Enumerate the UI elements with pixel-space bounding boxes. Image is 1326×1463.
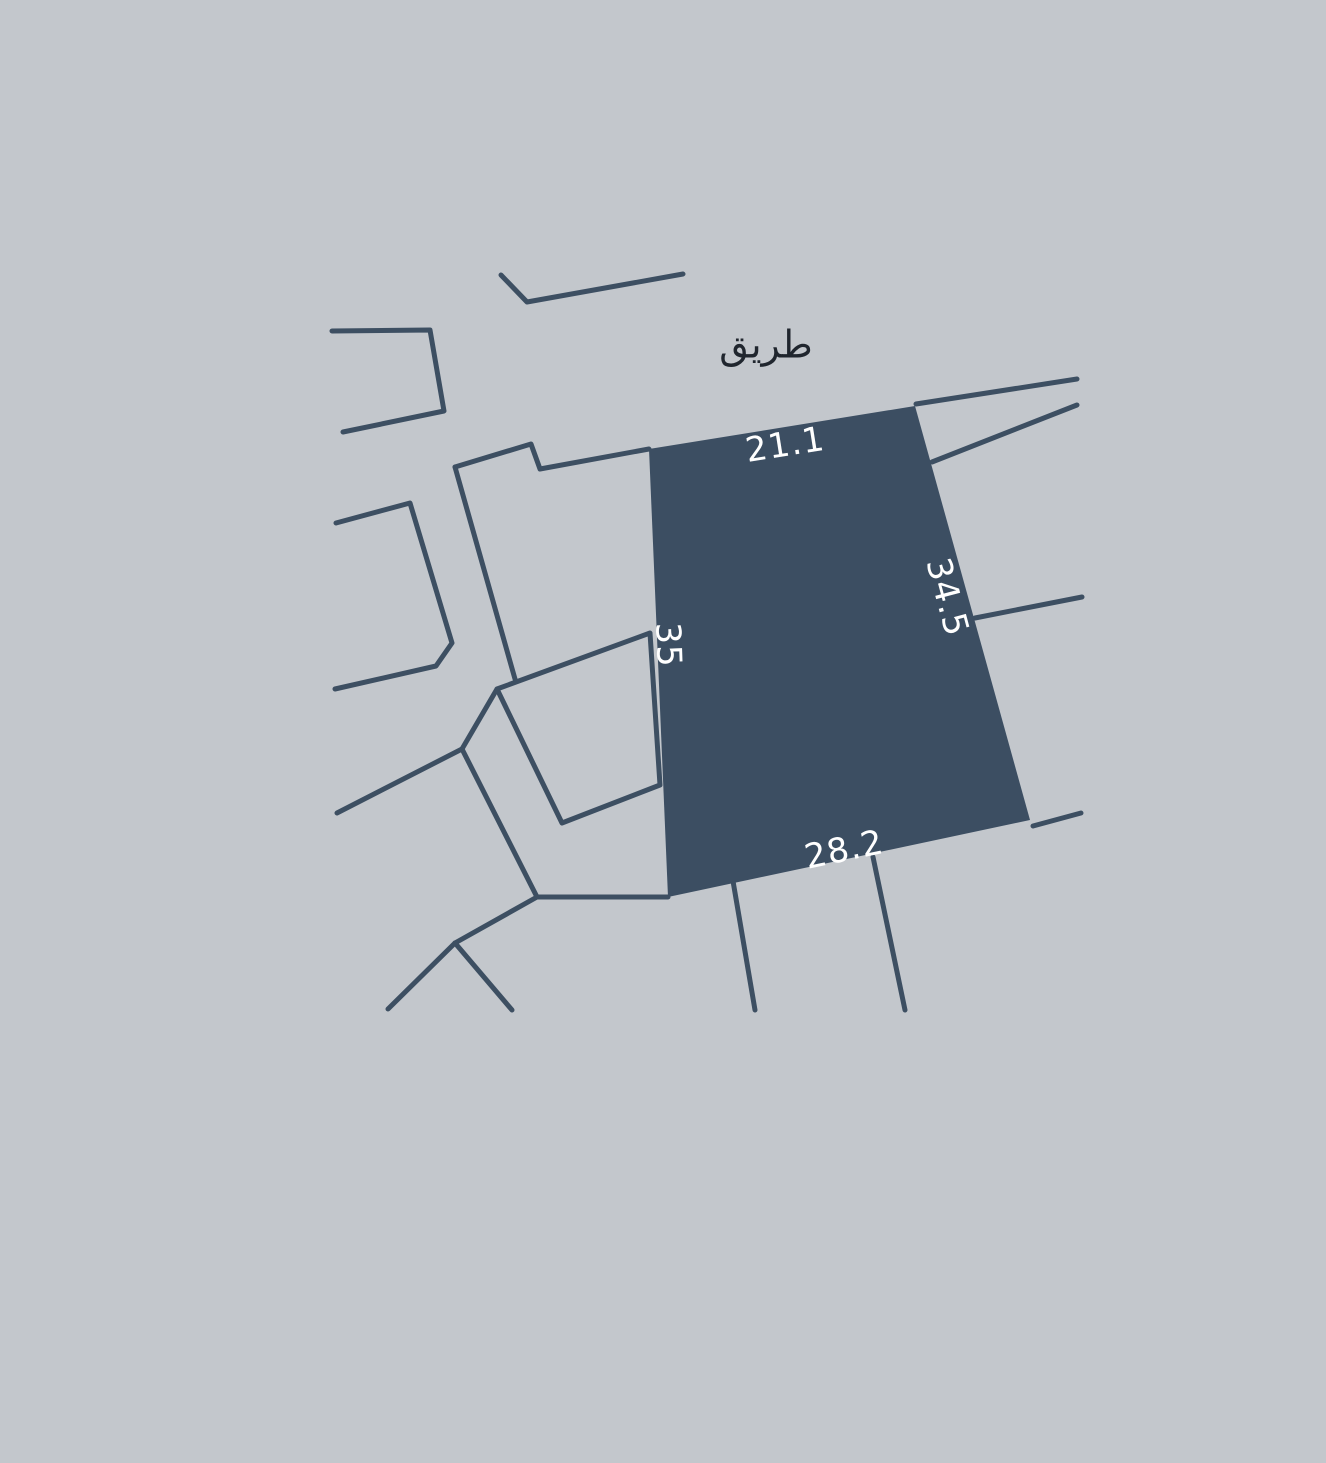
- cadastral-map-svg: طريق21.134.53528.2: [0, 0, 1326, 1463]
- parcel-dimension-label-left: 35: [647, 622, 689, 669]
- road-label: طريق: [719, 322, 812, 367]
- cadastral-map: طريق21.134.53528.2: [0, 0, 1326, 1463]
